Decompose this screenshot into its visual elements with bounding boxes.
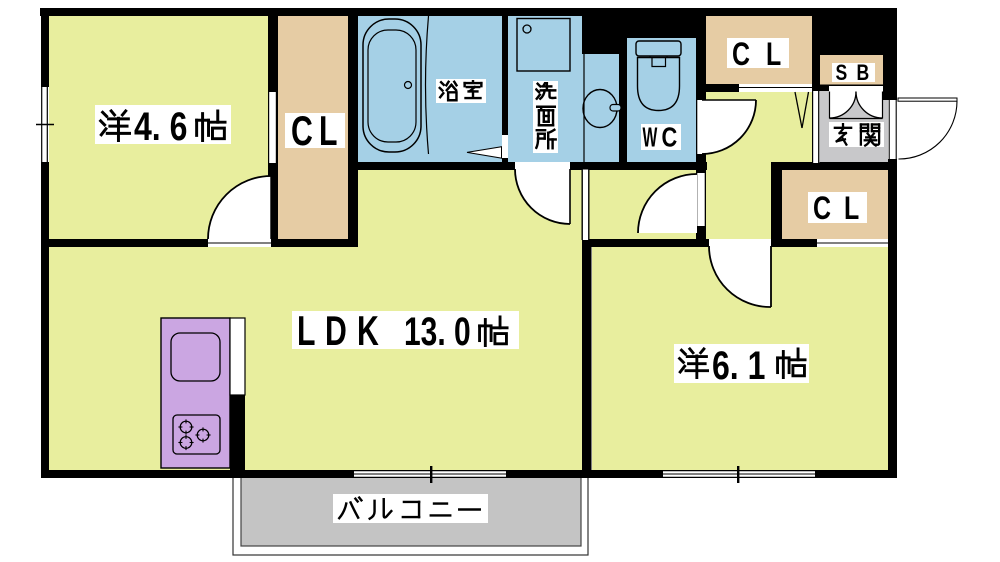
svg-text:L: L <box>844 191 859 227</box>
svg-text:D: D <box>325 307 347 354</box>
svg-text:L: L <box>319 107 337 154</box>
svg-text:S: S <box>836 61 848 85</box>
svg-text:6. 1: 6. 1 <box>712 343 765 388</box>
svg-text:W: W <box>643 121 658 153</box>
svg-text:B: B <box>857 61 870 85</box>
svg-text:C: C <box>813 191 831 227</box>
svg-text:L: L <box>766 37 781 73</box>
svg-text:K: K <box>357 307 379 354</box>
svg-text:13. 0: 13. 0 <box>404 310 471 354</box>
svg-text:C: C <box>662 122 678 153</box>
svg-text:L: L <box>297 307 315 354</box>
svg-text:C: C <box>732 37 750 73</box>
svg-text:4. 6: 4. 6 <box>134 104 187 149</box>
svg-text:C: C <box>291 107 313 154</box>
